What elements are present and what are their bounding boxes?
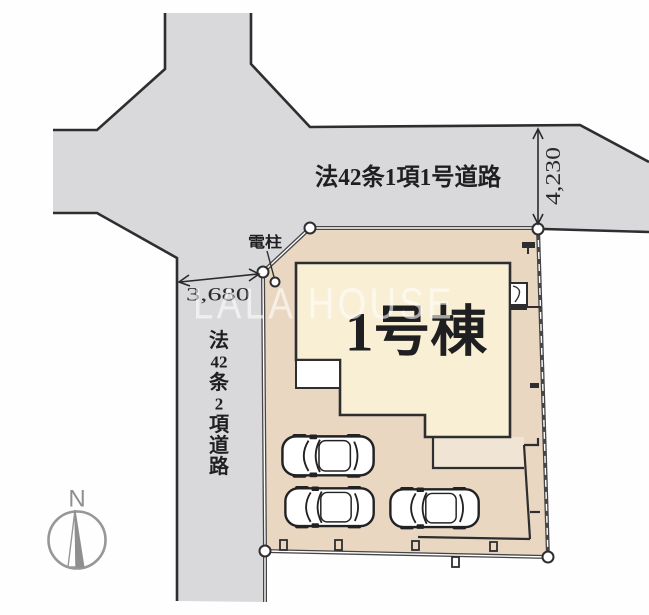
entrance-porch (296, 360, 340, 388)
compass-icon: N (49, 486, 106, 569)
north-road-label: 法42条1項1号道路 (315, 163, 502, 191)
compass-north-label: N (68, 486, 85, 513)
road-width-dimension: 4,230 (541, 147, 565, 205)
car-icon (285, 486, 373, 528)
boundary-marker (543, 552, 554, 563)
boundary-fitting (530, 383, 539, 388)
svg-text:路: 路 (209, 454, 230, 478)
boundary-marker (305, 223, 316, 234)
svg-text:法: 法 (209, 328, 229, 352)
svg-text:条: 条 (209, 370, 230, 394)
utility-pole-label: 電柱 (248, 233, 282, 251)
watermark: LALA HOUSE (193, 280, 455, 329)
svg-text:道: 道 (209, 433, 229, 457)
boundary-marker (260, 546, 271, 557)
car-icon (282, 434, 373, 478)
boundary-fitting (522, 242, 535, 248)
car-icon (390, 487, 478, 529)
entrance-approach (433, 437, 524, 468)
svg-text:42: 42 (211, 353, 228, 372)
svg-text:項: 項 (209, 414, 230, 436)
boundary-marker (258, 267, 269, 278)
svg-text:2: 2 (215, 395, 224, 414)
site-plan-canvas: 1号棟 電柱 4,230 3,680 法42条1項1号道路 法 42 条 (0, 0, 649, 615)
